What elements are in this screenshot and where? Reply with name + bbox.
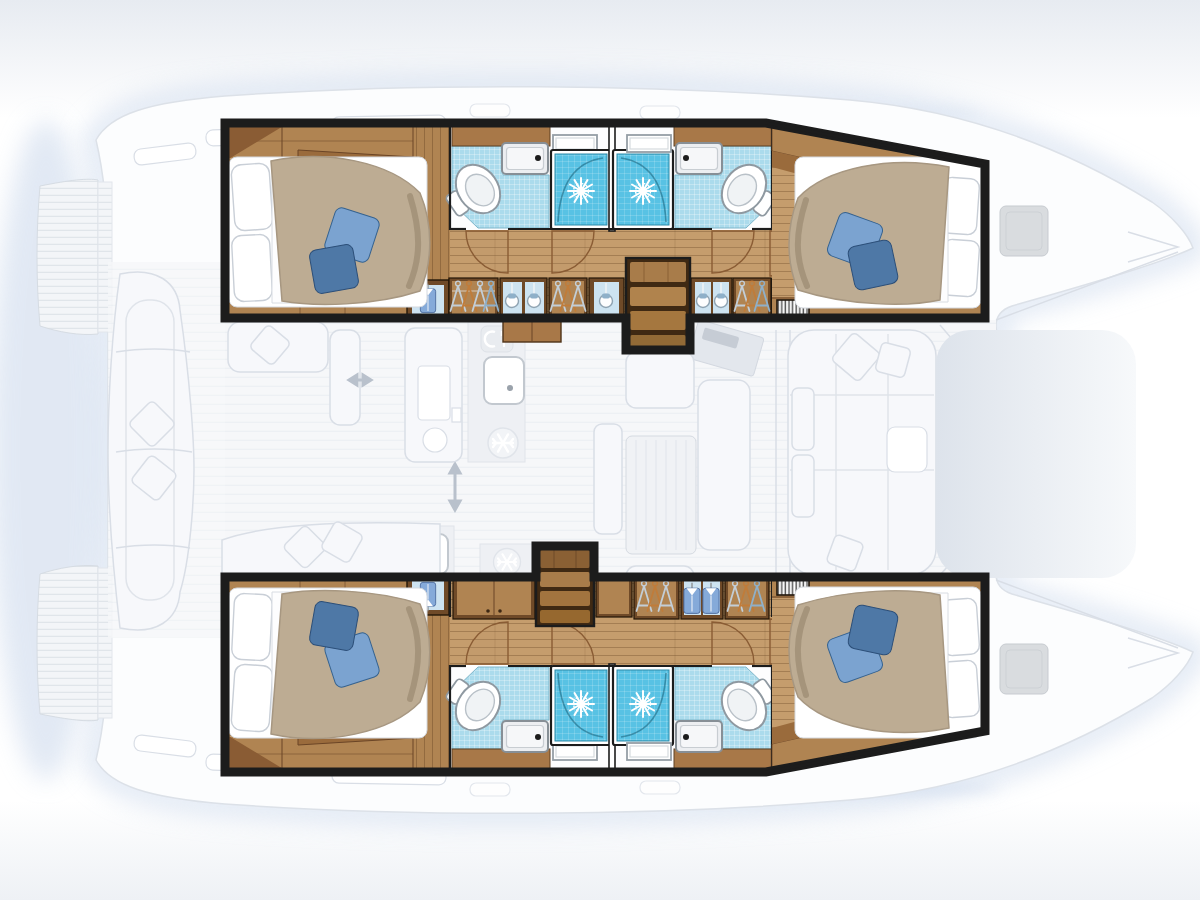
hanger-locker <box>449 278 499 318</box>
hanger-locker <box>725 577 769 619</box>
wood-locker <box>453 577 535 619</box>
galley-sink <box>484 357 524 404</box>
forward-lounge <box>788 330 936 575</box>
boat-floor-plan: Catamaran sailing yacht interior layout,… <box>0 0 1200 900</box>
hanger-locker <box>634 577 679 619</box>
foredeck-panel <box>936 330 1136 578</box>
starboard-companionway-stairs <box>536 546 594 626</box>
port-hull-interior <box>225 123 985 352</box>
fridge-icon <box>494 549 521 576</box>
port-companionway-stairs <box>626 258 690 352</box>
lounge-table <box>887 427 927 472</box>
hanging-bags-locker <box>691 278 732 318</box>
swim-platform <box>37 565 98 720</box>
wood-locker <box>596 577 632 617</box>
hanging-bags-locker <box>500 278 547 318</box>
port-corridor-lockers <box>449 278 771 318</box>
boat-floor-plan-page: Catamaran sailing yacht interior layout,… <box>0 0 1200 900</box>
swim-platform <box>37 179 98 334</box>
hanger-locker <box>733 278 771 318</box>
fridge-icon <box>488 428 518 458</box>
hanging-bag-locker <box>589 278 624 318</box>
galley-island <box>405 328 462 462</box>
galley-counter <box>468 322 525 462</box>
starboard-corridor-lockers <box>453 577 769 619</box>
hanger-locker <box>549 278 587 318</box>
shirt-locker <box>681 577 723 619</box>
starboard-hull-interior <box>225 546 985 772</box>
